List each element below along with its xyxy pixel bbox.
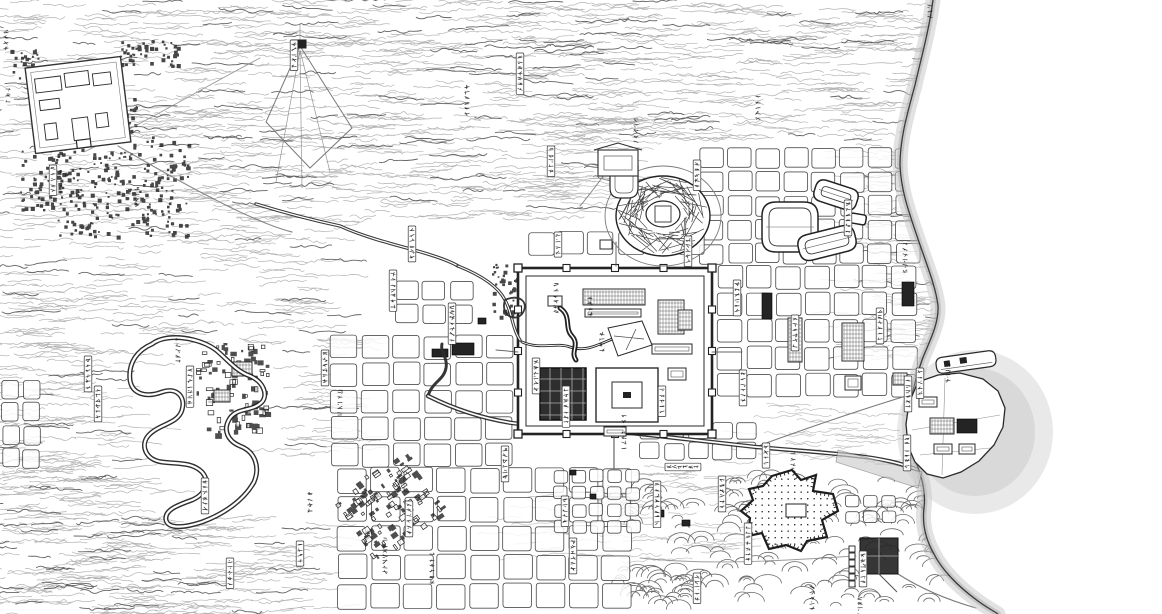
building [585,309,641,317]
bastion-wall-tower [849,553,855,559]
ridge-contours [0,370,142,488]
map-label [762,443,770,468]
map-label [739,370,747,406]
label-cartouche [903,435,911,471]
kite-outline [266,46,352,168]
map-label [186,366,194,407]
ship [959,357,967,364]
label-cartouche [408,226,416,262]
bastion-wall-tower [849,560,855,566]
corner-tower [514,430,522,438]
wall-tower [563,431,570,438]
map-label [94,386,102,422]
label-glyphs [308,492,312,512]
map-label [176,339,180,363]
fort-hall [786,504,806,517]
bastion-wall-tower [849,574,855,580]
dark-building [957,419,977,433]
building [652,344,692,354]
map-root: Hand-drawn ink bird's-eye map of a walle… [0,0,1162,614]
map-label [916,368,924,399]
wall-tower [660,431,667,438]
bastion-wall-tower [849,567,855,573]
map-label [547,146,555,177]
map-label [49,165,57,196]
label-cartouche [532,358,540,394]
map-label [290,40,298,71]
map-label [903,435,911,471]
map-label [408,226,416,262]
dark-building [570,470,576,475]
map-label [389,270,397,311]
wall-tower [709,348,716,355]
bastion-wall-tower [849,581,855,587]
dark-building [478,318,486,324]
label-glyphs [791,453,795,471]
label-cartouche [94,386,102,422]
map-label [665,463,701,471]
building [959,444,975,454]
map-label [756,96,760,120]
label-glyphs [176,339,180,363]
hatched-building [930,418,954,434]
wall-tower [515,306,522,313]
hatched-building [583,289,645,305]
compound-building [64,71,90,88]
map-label [226,558,234,589]
label-cartouche [653,481,661,528]
label-cartouche [733,280,741,316]
map-label [562,386,570,427]
corner-tower [708,430,716,438]
map-label [6,89,10,102]
map-label [791,315,799,351]
wall-tower [709,389,716,396]
map-label [201,478,209,514]
label-glyphs [756,96,760,120]
map-label [693,573,701,604]
label-glyphs [4,30,8,50]
dense-district [196,343,271,439]
south-grid [337,467,631,609]
compound-building [92,72,111,86]
map-label [744,523,752,564]
wall-tower [612,265,619,272]
map-label [653,481,661,528]
map-label [561,496,569,527]
wall-tower [515,348,522,355]
map-label [859,551,867,587]
label-cartouche [791,315,799,351]
label-cartouche [547,146,555,177]
label-cartouche [389,270,397,311]
dark-building [452,343,474,355]
forest-patch [20,150,66,211]
map-label [296,541,304,566]
west-grid [330,335,513,467]
corner-tower [514,264,522,272]
map-label [465,85,469,116]
compound-gate [76,139,91,149]
nw-palace-grid [396,281,474,323]
map-label [658,386,666,417]
mountain-contours [0,476,215,614]
map-label [554,232,562,257]
map-label [733,280,741,316]
map-label [448,303,456,344]
map-label [321,350,329,386]
label-glyphs [465,85,469,116]
dark-building [902,282,914,306]
dark-building [682,520,690,526]
label-cartouche [859,551,867,587]
ridge-contours [289,0,645,211]
compound-building [72,117,91,141]
compound-building [39,98,60,110]
ink-map-canvas: Hand-drawn ink bird's-eye map of a walle… [0,0,1162,614]
compound-building [44,123,58,140]
walled-compound-nw [25,56,131,153]
map-label [501,446,509,482]
dark-building [762,293,772,319]
map-label [904,376,912,412]
map-label [569,538,577,574]
map-label [876,308,884,344]
label-cartouche [876,308,884,344]
label-cartouche [405,501,413,537]
map-label [693,160,701,191]
wall-tower [563,265,570,272]
map-label [405,501,413,537]
forest-patch [56,136,191,239]
label-glyphs [858,597,862,614]
map-label [858,597,862,614]
label-cartouche [201,478,209,514]
shrine-roof [594,143,642,150]
bastion-compound [849,538,898,592]
map-label [718,476,726,512]
label-cartouche [844,200,852,236]
map-label [684,236,692,267]
river-feed-inner [458,266,520,340]
map-label [516,53,524,94]
wall-tower [709,306,716,313]
stadium-field [646,201,680,227]
corner-tower [708,264,716,272]
building [600,240,612,249]
label-glyphs [6,89,10,102]
river-feed [458,266,520,340]
wall-tower [515,389,522,396]
dark-building [590,494,596,499]
map-label [532,358,540,394]
map-label [844,200,852,236]
bastion-wall-tower [849,546,855,552]
map-label [4,30,8,50]
label-cartouche [744,523,752,564]
map-label [308,492,312,512]
map-label [84,356,92,392]
compound-building [35,76,63,93]
building [845,376,861,390]
compound-building [95,113,109,128]
map-label [791,453,795,471]
